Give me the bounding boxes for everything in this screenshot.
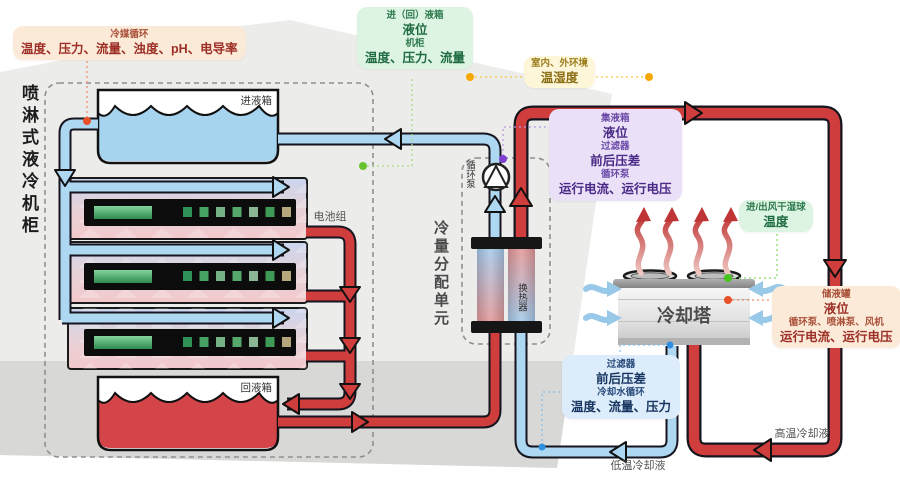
callout-title: 进（回）液箱	[365, 10, 465, 22]
heat-exchanger-label: 换热器	[514, 283, 528, 312]
return-tank: 回液箱	[98, 377, 278, 450]
cooling-tower-label: 冷却塔	[657, 305, 712, 326]
callout-metrics: 温度	[746, 214, 806, 230]
callout-storage-tank: 储液罐 液位 循环泵、喷淋泵、风机 运行电流、运行电压	[772, 286, 900, 348]
callout-metrics: 运行电流、运行电压	[780, 329, 893, 345]
return-tank-label: 回液箱	[241, 381, 273, 394]
high-temp-coolant-label: 高温冷却液	[775, 426, 830, 440]
callout-title: 集液箱	[559, 113, 672, 125]
callout-title: 机柜	[365, 38, 465, 50]
battery-group-label: 电池组	[314, 209, 347, 223]
callout-title: 过滤器	[571, 359, 671, 371]
callout-tank-cabinet: 进（回）液箱 液位 机柜 温度、压力、流量	[357, 7, 473, 69]
callout-metrics: 液位	[365, 22, 465, 38]
callout-metrics: 温度、压力、流量、浊度、pH、电导率	[21, 41, 238, 57]
callout-title: 进/出风干湿球	[746, 202, 806, 214]
cabinet-title: 喷淋式液冷机柜	[16, 84, 41, 238]
pump-label: 循环泵	[462, 160, 476, 189]
callout-metrics: 温湿度	[531, 70, 588, 86]
callout-metrics: 液位	[780, 301, 893, 317]
callout-metrics: 温度、流量、压力	[571, 399, 671, 415]
callout-title: 室内、外环境	[531, 58, 588, 70]
callout-wet-bulb: 进/出风干湿球 温度	[739, 200, 813, 232]
callout-title: 过滤器	[559, 141, 672, 153]
cdu-label: 冷量分配单元	[430, 220, 451, 328]
callout-title: 冷媒循环	[21, 29, 238, 41]
callout-environment: 室内、外环境 温湿度	[524, 56, 595, 88]
heat-exhaust-arrows	[636, 207, 738, 273]
callout-title: 循环泵	[559, 169, 672, 181]
inlet-tank-label: 进液箱	[241, 94, 273, 107]
cooling-tower: 冷却塔	[613, 271, 755, 346]
callout-refrigerant-loop: 冷媒循环 温度、压力、流量、浊度、pH、电导率	[13, 26, 246, 60]
callout-metrics: 运行电流、运行电压	[559, 181, 672, 197]
diagram-stage: 进液箱 回液箱	[0, 0, 900, 495]
callout-metrics: 前后压差	[559, 153, 672, 169]
callout-metrics: 温度、压力、流量	[365, 50, 465, 66]
low-temp-coolant-label: 低温冷却液	[611, 458, 666, 472]
callout-title: 储液罐	[780, 289, 893, 301]
callout-metrics: 液位	[559, 125, 672, 141]
floor-area	[0, 361, 573, 468]
callout-cooling-water: 过滤器 前后压差 冷却水循环 温度、流量、压力	[562, 355, 680, 419]
callout-collector-tank: 集液箱 液位 过滤器 前后压差 循环泵 运行电流、运行电压	[549, 109, 682, 201]
circulation-pump	[483, 164, 509, 190]
callout-title: 循环泵、喷淋泵、风机	[780, 317, 893, 329]
callout-title: 冷却水循环	[571, 387, 671, 399]
inlet-tank: 进液箱	[98, 90, 278, 163]
callout-metrics: 前后压差	[571, 371, 671, 387]
